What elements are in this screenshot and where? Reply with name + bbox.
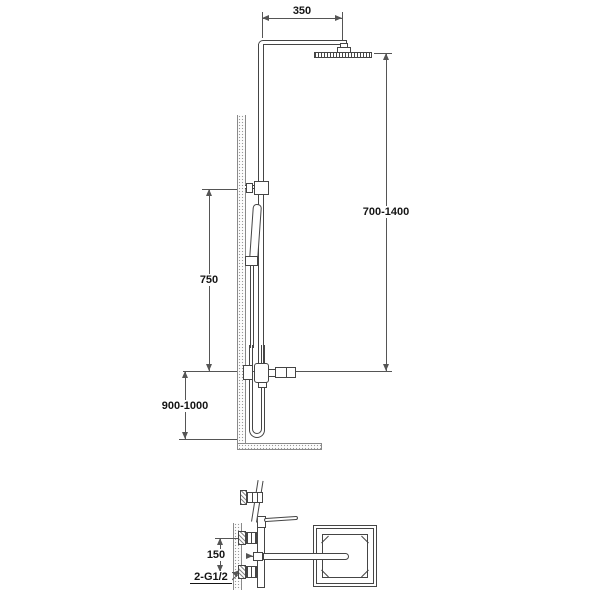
dim-900-1000-ext-bottom: [179, 439, 240, 440]
valve-wall-flange: [243, 365, 253, 380]
detail-knob-line-1: [252, 493, 253, 502]
detail-knob-line-2: [257, 493, 258, 502]
inlet-thread-label: 2-G1/2: [190, 571, 232, 584]
valve-spout-divider: [286, 367, 287, 378]
dim-900-1000-arrow-bottom: [182, 432, 188, 439]
valve-hose-nut: [258, 382, 267, 388]
floor-section: [237, 443, 322, 450]
dim-900-1000-arrow-top: [182, 371, 188, 378]
wall-section: [237, 115, 246, 443]
detail-knob: [247, 492, 263, 503]
detail-knob-hatch: [240, 490, 247, 505]
dim-750-arrow-bottom: [206, 364, 212, 371]
shower-arm: [258, 40, 347, 45]
valve-body: [254, 363, 269, 383]
detail-lever-handle: [264, 516, 298, 522]
dim-150-arrow-top: [217, 538, 223, 545]
wall-bracket-nut: [246, 183, 253, 193]
slide-bar-clamp: [245, 256, 258, 266]
inlet-top-nut: [246, 532, 257, 544]
pipe-junction: [254, 181, 269, 195]
detail-spout-arm: [263, 553, 349, 560]
dim-150-label: 150: [202, 549, 230, 561]
detail-middle-outlet: [253, 552, 263, 561]
shower-hose-inner: [252, 345, 262, 434]
dim-700-1400-arrow-top: [383, 53, 389, 60]
inlet-bottom-nut: [246, 566, 257, 578]
dim-900-1000-label: 900-1000: [159, 400, 211, 412]
shower-installation-drawing: 350 700-1400 750 900-1000 150 2-G1/2: [0, 0, 600, 600]
dim-700-1400-label: 700-1400: [358, 206, 414, 218]
dim-350-line: [262, 18, 342, 19]
dim-350-arrow-right: [335, 15, 342, 21]
dim-700-1400-arrow-bottom: [383, 364, 389, 371]
dim-350-ext-left: [262, 12, 263, 38]
dim-350-label: 350: [284, 5, 320, 17]
hand-shower-handle: [250, 260, 254, 348]
middle-outlet-pointer-arrow: [246, 553, 253, 559]
inlet-top-wall-anchor: [238, 531, 246, 545]
rain-shower-head: [314, 52, 372, 58]
dim-350-arrow-left: [262, 15, 269, 21]
dim-750-arrow-top: [206, 189, 212, 196]
dim-750-label: 750: [195, 274, 223, 286]
